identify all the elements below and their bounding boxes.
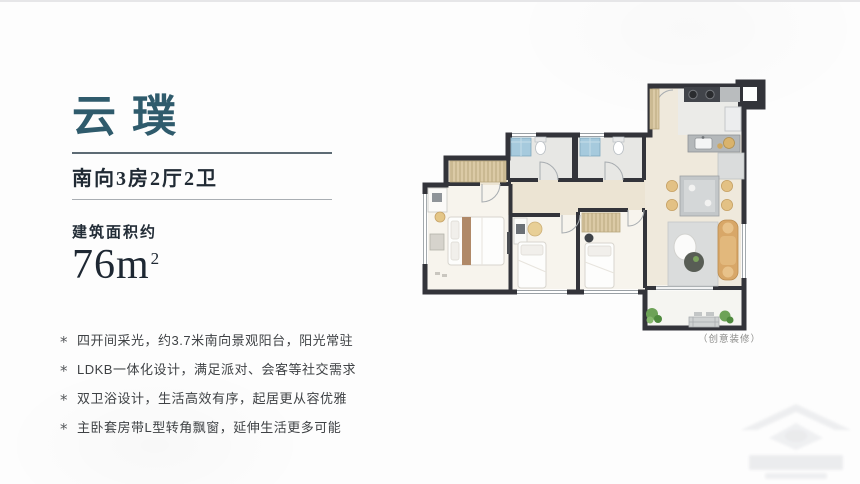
feature-item: * 双卫浴设计，生活高效有序，起居更从容优雅: [60, 391, 390, 407]
bullet-icon: *: [60, 335, 68, 349]
layout-subtitle: 南向3房2厅2卫: [72, 162, 334, 191]
floorplan-caption: （创意装修）: [698, 331, 808, 345]
wardrobe: [450, 161, 506, 182]
bedroom-3: [582, 213, 620, 288]
entry: [650, 89, 659, 129]
tv-icon: [507, 232, 510, 254]
shoe-cabinet: [650, 89, 659, 129]
utility-shaft: [738, 82, 763, 107]
bullet-icon: *: [60, 364, 68, 378]
info-panel: 云璞 南向3房2厅2卫 建筑面积约 76m2: [72, 92, 334, 286]
chair: [528, 222, 542, 236]
feature-item: * LDKB一体化设计，满足派对、会客等社交需求: [60, 362, 390, 378]
toilet-icon: [536, 142, 546, 155]
area-exponent: 2: [151, 249, 161, 268]
feature-item: * 四开间采光，约3.7米南向景观阳台，阳光常驻: [60, 333, 390, 349]
watermark-logo: [733, 398, 860, 480]
toilet-icon: [614, 142, 624, 155]
bathroom-1: [511, 137, 546, 156]
area-label: 建筑面积约: [72, 221, 334, 242]
slide-canvas: 云璞 南向3房2厅2卫 建筑面积约 76m2 * 四开间采光，约3.7米南向景观…: [0, 0, 860, 484]
sink-icon: [695, 138, 712, 149]
feature-item: * 主卧套房带L型转角飘窗，延伸生活更多可能: [60, 420, 390, 436]
speaker-icon: [585, 234, 594, 243]
feature-text: 主卧套房带L型转角飘窗，延伸生活更多可能: [77, 420, 341, 436]
bullet-icon: *: [60, 422, 68, 436]
dresser: [430, 234, 444, 250]
page-title: 云璞: [72, 92, 334, 143]
living-area: [668, 220, 738, 286]
subtitle-underline: [72, 199, 332, 200]
feature-text: LDKB一体化设计，满足派对、会客等社交需求: [77, 362, 356, 378]
feature-text: 四开间采光，约3.7米南向景观阳台，阳光常驻: [77, 333, 353, 349]
title-underline: [72, 152, 332, 154]
bullet-icon: *: [60, 393, 68, 407]
bedroom-2: [514, 218, 546, 288]
feature-list: * 四开间采光，约3.7米南向景观阳台，阳光常驻 * LDKB一体化设计，满足派…: [60, 333, 390, 449]
area-value: 76m2: [72, 244, 334, 286]
feature-text: 双卫浴设计，生活高效有序，起居更从容优雅: [77, 391, 347, 407]
coffee-table: [684, 252, 704, 272]
floorplan-image: [422, 76, 792, 346]
fridge-icon: [725, 107, 741, 131]
wardrobe: [582, 213, 620, 232]
top-divider: [0, 0, 860, 2]
